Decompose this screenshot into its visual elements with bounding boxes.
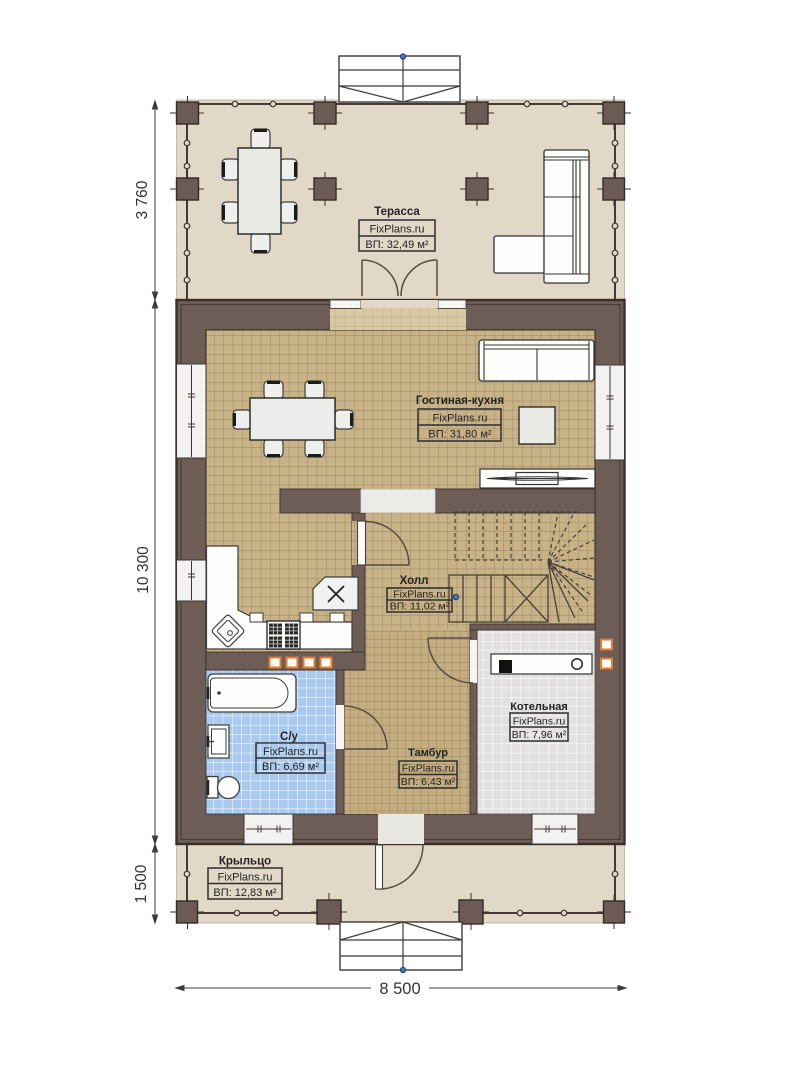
svg-text:FixPlans.ru: FixPlans.ru <box>513 716 566 728</box>
svg-text:FixPlans.ru: FixPlans.ru <box>393 589 446 601</box>
svg-text:ВП: 6,69 м²: ВП: 6,69 м² <box>262 761 319 773</box>
svg-text:1 500: 1 500 <box>133 864 150 903</box>
svg-text:Терасса: Терасса <box>374 206 420 218</box>
svg-text:ВП: 12,83 м²: ВП: 12,83 м² <box>213 887 277 899</box>
svg-text:ВП: 7,96 м²: ВП: 7,96 м² <box>512 729 567 741</box>
svg-text:ВП: 31,80 м²: ВП: 31,80 м² <box>428 429 492 441</box>
svg-text:3 760: 3 760 <box>134 180 151 219</box>
svg-text:Гостиная-кухня: Гостиная-кухня <box>416 395 504 407</box>
svg-text:Котельная: Котельная <box>510 701 568 713</box>
svg-text:10 300: 10 300 <box>135 546 152 594</box>
svg-text:FixPlans.ru: FixPlans.ru <box>263 746 318 758</box>
svg-text:8 500: 8 500 <box>379 980 420 998</box>
svg-text:FixPlans.ru: FixPlans.ru <box>402 763 455 775</box>
svg-text:Тамбур: Тамбур <box>408 747 448 759</box>
svg-text:Крыльцо: Крыльцо <box>219 856 271 868</box>
svg-text:FixPlans.ru: FixPlans.ru <box>432 413 487 425</box>
svg-text:FixPlans.ru: FixPlans.ru <box>217 872 272 884</box>
svg-text:ВП: 6,43 м²: ВП: 6,43 м² <box>401 776 456 788</box>
svg-text:Холл: Холл <box>400 575 429 587</box>
svg-text:С/у: С/у <box>280 731 299 743</box>
svg-text:ВП: 32,49 м²: ВП: 32,49 м² <box>365 239 429 251</box>
svg-text:FixPlans.ru: FixPlans.ru <box>369 224 424 236</box>
svg-text:ВП: 11,02 м²: ВП: 11,02 м² <box>390 601 450 613</box>
